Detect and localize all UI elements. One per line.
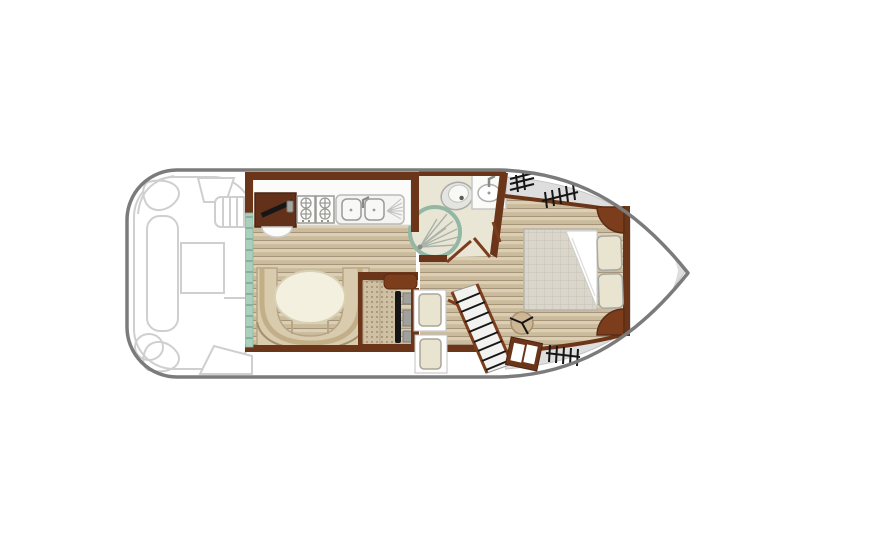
saloon-top-wall (247, 172, 416, 180)
sink-with-drainer (336, 195, 404, 224)
boat-floorplan-svg (0, 0, 895, 560)
bathroom-bottom-wall (419, 255, 447, 262)
step-box (505, 337, 542, 371)
saloon-left-wall-top (245, 172, 253, 214)
sliding-patio-door (246, 213, 254, 347)
saloon-bottom-wall (247, 345, 483, 352)
companionway-panels (414, 290, 447, 373)
helm-station (358, 272, 418, 352)
bow-tip (631, 206, 678, 337)
dinette (257, 268, 369, 350)
gunwale-bottom (253, 351, 505, 374)
stern-side-bench (147, 216, 178, 331)
cabin-stool (510, 312, 533, 334)
saloon-right-wall-top (411, 172, 419, 232)
hob-4-burner (297, 196, 334, 223)
stern-table (181, 243, 224, 293)
steering-wheel-icon (395, 291, 401, 343)
floorplan-image (0, 0, 895, 560)
helm-dashboard (384, 274, 417, 289)
dinette-table (275, 271, 345, 323)
